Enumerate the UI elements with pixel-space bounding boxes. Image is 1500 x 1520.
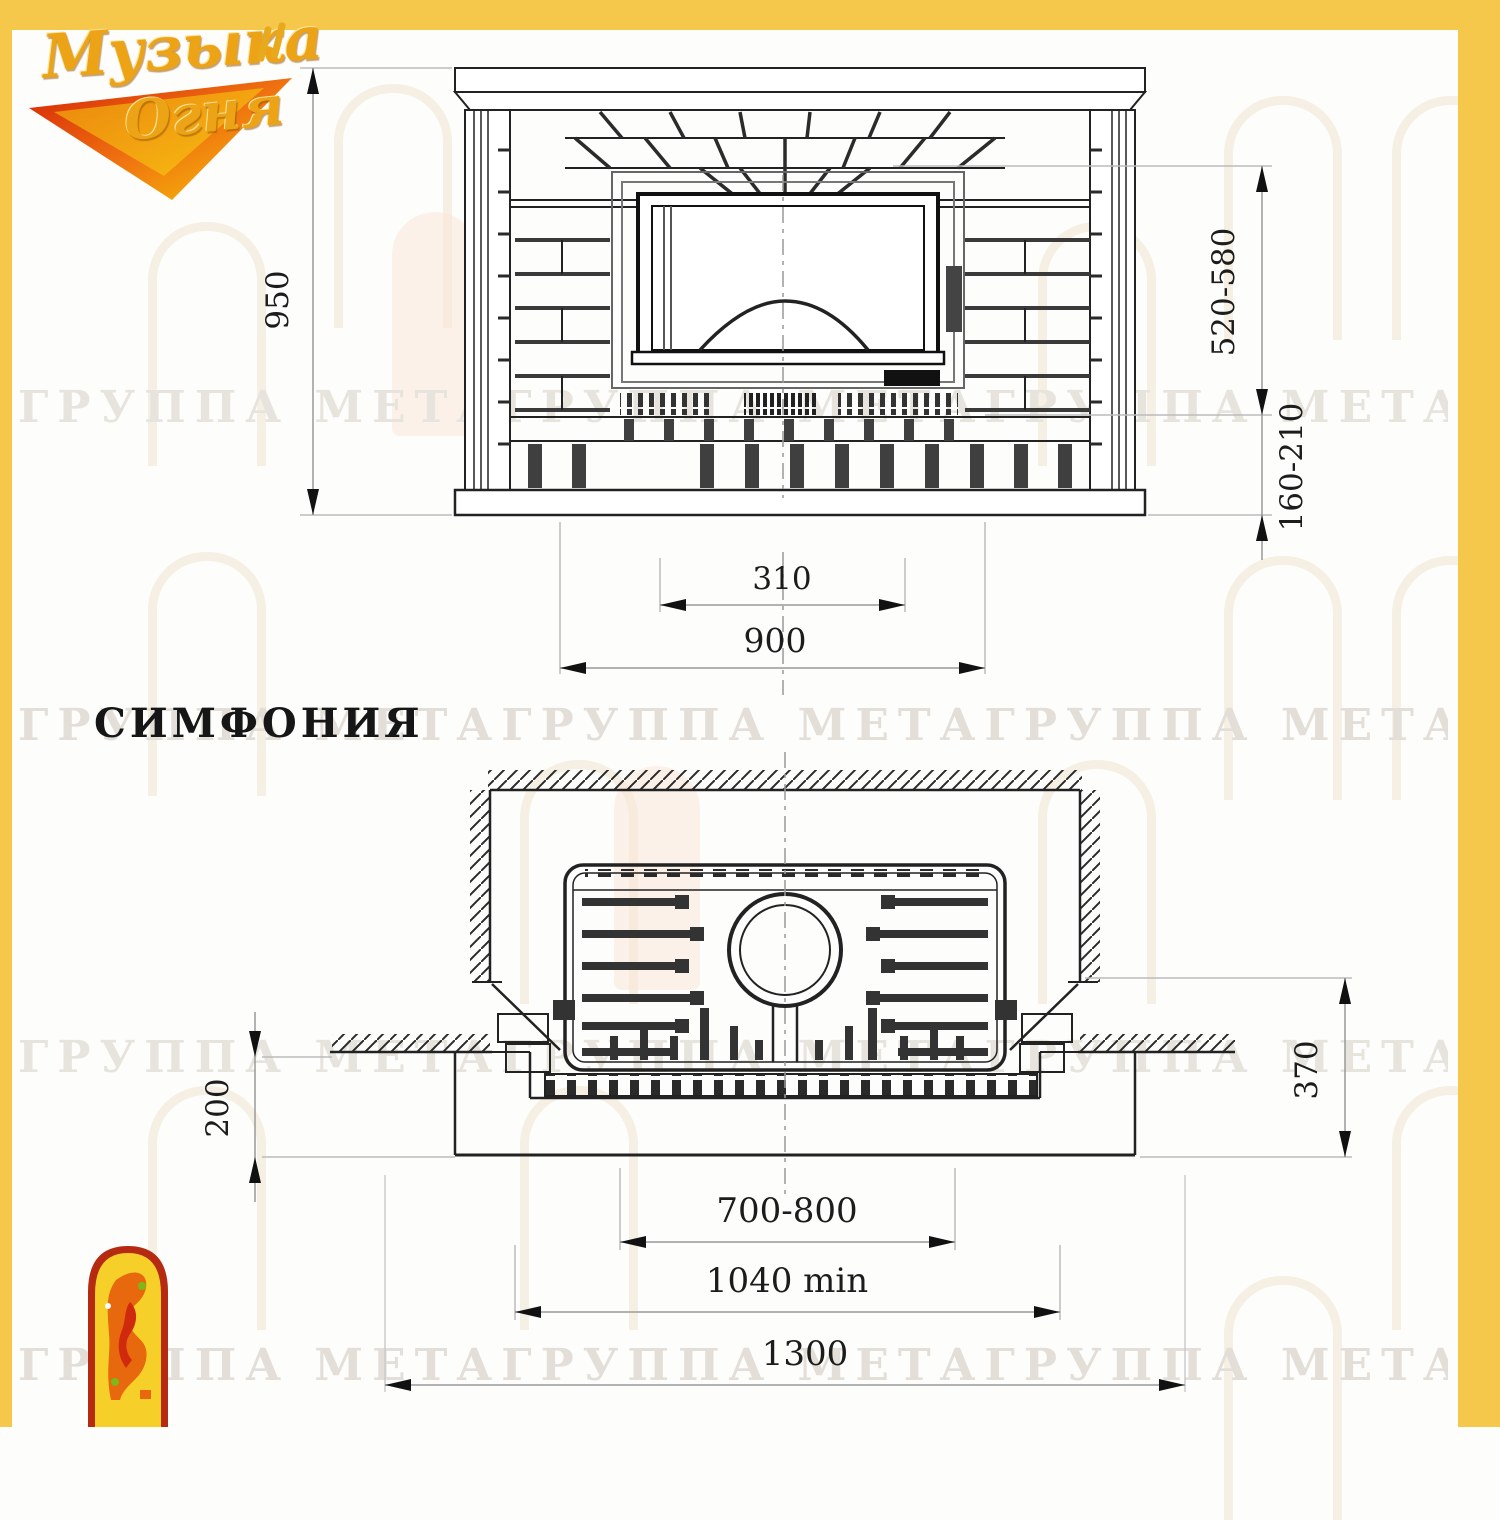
svg-text:310: 310 [752, 561, 811, 597]
svg-text:370: 370 [1289, 1040, 1325, 1099]
dim-opening-width: 310 [660, 558, 905, 612]
dim-insert-width: 700-800 [620, 1168, 955, 1250]
model-title: СИМФОНИЯ [94, 700, 424, 747]
dim-plinth-height: 160-210 [1148, 403, 1310, 560]
firebox-front [612, 172, 964, 415]
dim-side-depth: 370 [1085, 978, 1352, 1157]
svg-text:900: 900 [744, 621, 807, 660]
svg-text:1300: 1300 [762, 1334, 849, 1374]
logo-word-2: Огня [122, 78, 287, 148]
corner-flame-icon [84, 1242, 172, 1431]
logo-word-1: Музыка [40, 8, 325, 87]
brand-logo: Музыка Огня [14, 8, 314, 208]
svg-text:1040 min: 1040 min [706, 1261, 868, 1301]
svg-text:950: 950 [260, 270, 296, 329]
plan-view-drawing [330, 752, 1235, 1198]
svg-text:160-210: 160-210 [1274, 403, 1310, 532]
door-handle [946, 266, 962, 332]
front-view-drawing [455, 68, 1145, 695]
svg-text:520-580: 520-580 [1206, 228, 1242, 357]
page-border-right [1458, 0, 1500, 1427]
dim-body-width: 900 [560, 522, 985, 674]
page-border-left [0, 0, 12, 1427]
svg-text:700-800: 700-800 [716, 1191, 857, 1231]
svg-text:200: 200 [200, 1078, 236, 1137]
dim-niche-width: 1040 min [515, 1245, 1060, 1320]
